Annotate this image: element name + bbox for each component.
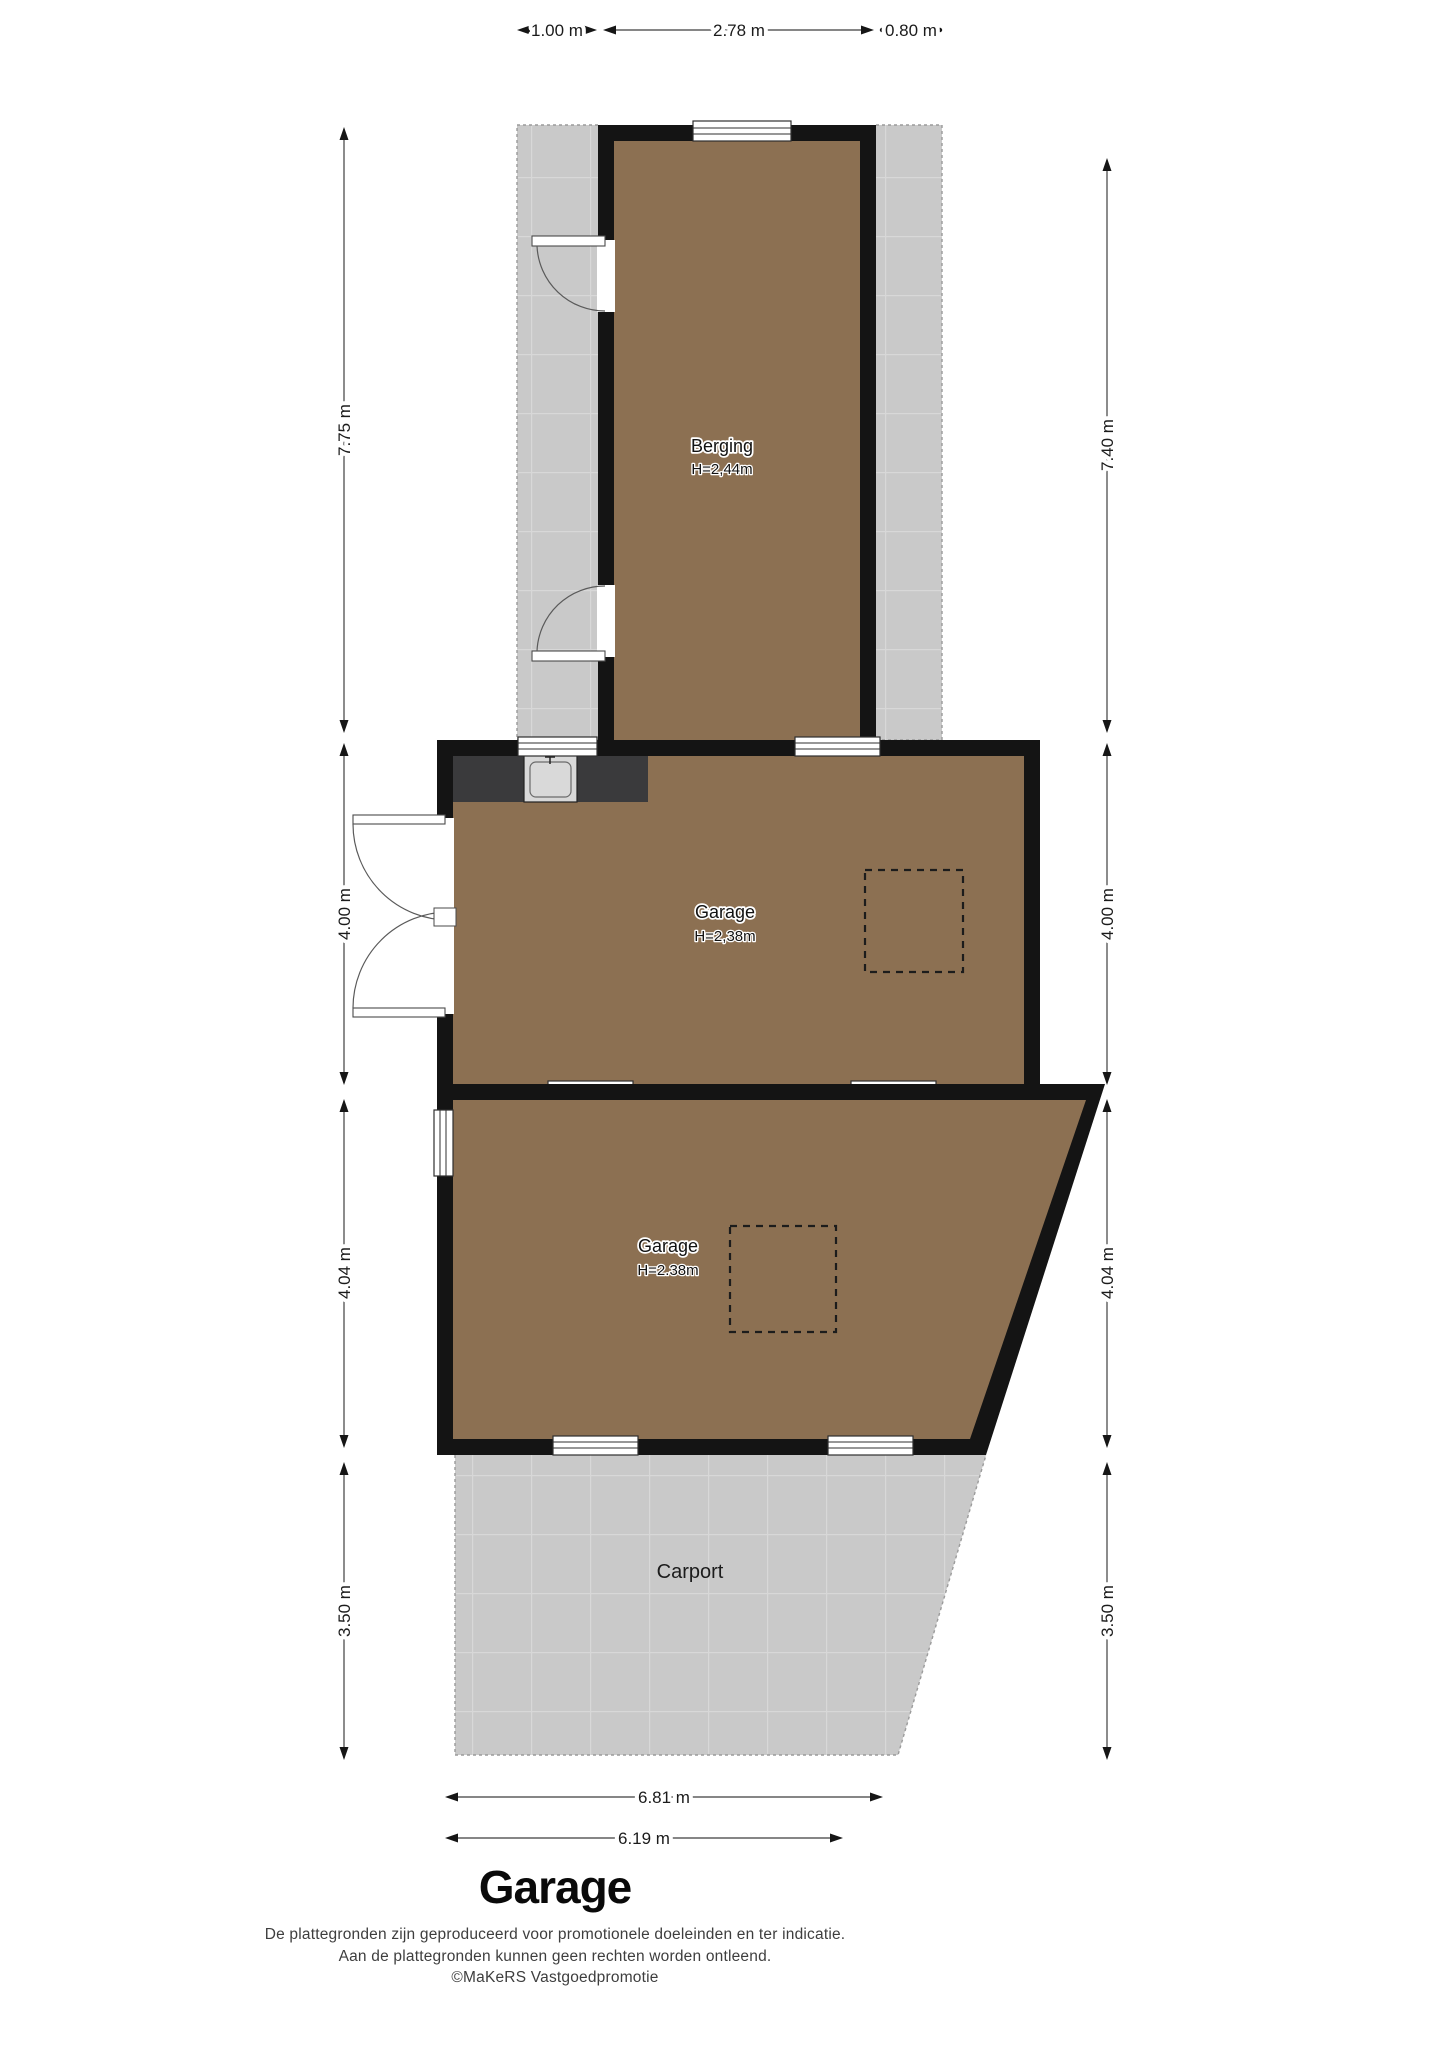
svg-text:0.80 m: 0.80 m bbox=[885, 21, 937, 40]
dimension-right-4: 3.50 m bbox=[1098, 1462, 1117, 1760]
garage1-name-label: Garage bbox=[695, 902, 755, 922]
plan-title: Garage bbox=[0, 1860, 1110, 1914]
garage2-bottom-window-right bbox=[828, 1436, 913, 1455]
room-garage-1: Garage H=2,38m bbox=[353, 737, 1040, 1100]
svg-text:3.50 m: 3.50 m bbox=[1098, 1585, 1117, 1637]
dimension-top-2: 2.78 m bbox=[603, 21, 874, 40]
dimension-top-3: 0.80 m bbox=[880, 21, 942, 40]
paving-strip-left bbox=[517, 125, 598, 740]
garage1-double-door bbox=[353, 815, 456, 1017]
svg-text:1.00 m: 1.00 m bbox=[531, 21, 583, 40]
svg-text:6.81 m: 6.81 m bbox=[638, 1788, 690, 1807]
floor-plan-canvas: Carport Berging H=2,44m bbox=[0, 0, 1448, 2048]
dimension-right-1: 7.40 m bbox=[1098, 158, 1117, 733]
disclaimer-line-2: Aan de plattegronden kunnen geen rechten… bbox=[0, 1946, 1110, 1968]
garage2-left-window bbox=[434, 1110, 453, 1176]
garage1-top-window-left bbox=[518, 737, 597, 756]
garage1-top-window-right bbox=[795, 737, 880, 756]
svg-text:4.00 m: 4.00 m bbox=[335, 888, 354, 940]
garage2-name-label: Garage bbox=[638, 1236, 698, 1256]
dimension-bottom-1: 6.81 m bbox=[445, 1788, 883, 1807]
dimension-left-4: 3.50 m bbox=[335, 1462, 354, 1760]
svg-text:6.19 m: 6.19 m bbox=[618, 1829, 670, 1848]
paving-strip-right bbox=[876, 125, 942, 740]
garage2-height-label: H=2.38m bbox=[637, 1262, 698, 1279]
garage2-bottom-window-left bbox=[553, 1436, 638, 1455]
svg-text:7.40 m: 7.40 m bbox=[1098, 419, 1117, 471]
disclaimer-line-3: ©MaKeRS Vastgoedpromotie bbox=[0, 1967, 1110, 1989]
footer: Garage De plattegronden zijn geproduceer… bbox=[0, 1860, 1110, 1989]
floor-plan-page: Carport Berging H=2,44m bbox=[0, 0, 1448, 2048]
svg-text:2.78 m: 2.78 m bbox=[713, 21, 765, 40]
svg-text:4.00 m: 4.00 m bbox=[1098, 888, 1117, 940]
room-garage-2: Garage H=2.38m bbox=[434, 1084, 1105, 1455]
svg-text:7.75 m: 7.75 m bbox=[335, 404, 354, 456]
disclaimer-line-1: De plattegronden zijn geproduceerd voor … bbox=[0, 1924, 1110, 1946]
carport-area: Carport bbox=[455, 1455, 986, 1755]
svg-text:4.04 m: 4.04 m bbox=[1098, 1247, 1117, 1299]
garage1-height-label: H=2,38m bbox=[694, 928, 755, 945]
dimension-bottom-2: 6.19 m bbox=[445, 1829, 843, 1848]
dimension-left-2: 4.00 m bbox=[335, 743, 354, 1085]
carport-label: Carport bbox=[657, 1561, 724, 1583]
dimension-left-3: 4.04 m bbox=[335, 1099, 354, 1448]
berging-top-window bbox=[693, 121, 791, 141]
dimension-right-2: 4.00 m bbox=[1098, 743, 1117, 1085]
svg-text:3.50 m: 3.50 m bbox=[335, 1585, 354, 1637]
svg-text:4.04 m: 4.04 m bbox=[335, 1247, 354, 1299]
dimension-right-3: 4.04 m bbox=[1098, 1099, 1117, 1448]
disclaimer: De plattegronden zijn geproduceerd voor … bbox=[0, 1924, 1110, 1989]
berging-height-label: H=2,44m bbox=[691, 461, 752, 478]
berging-name-label: Berging bbox=[691, 436, 753, 456]
dimension-top-1: 1.00 m bbox=[517, 21, 597, 40]
dimension-left-1: 7.75 m bbox=[335, 127, 354, 733]
sink bbox=[524, 753, 577, 802]
